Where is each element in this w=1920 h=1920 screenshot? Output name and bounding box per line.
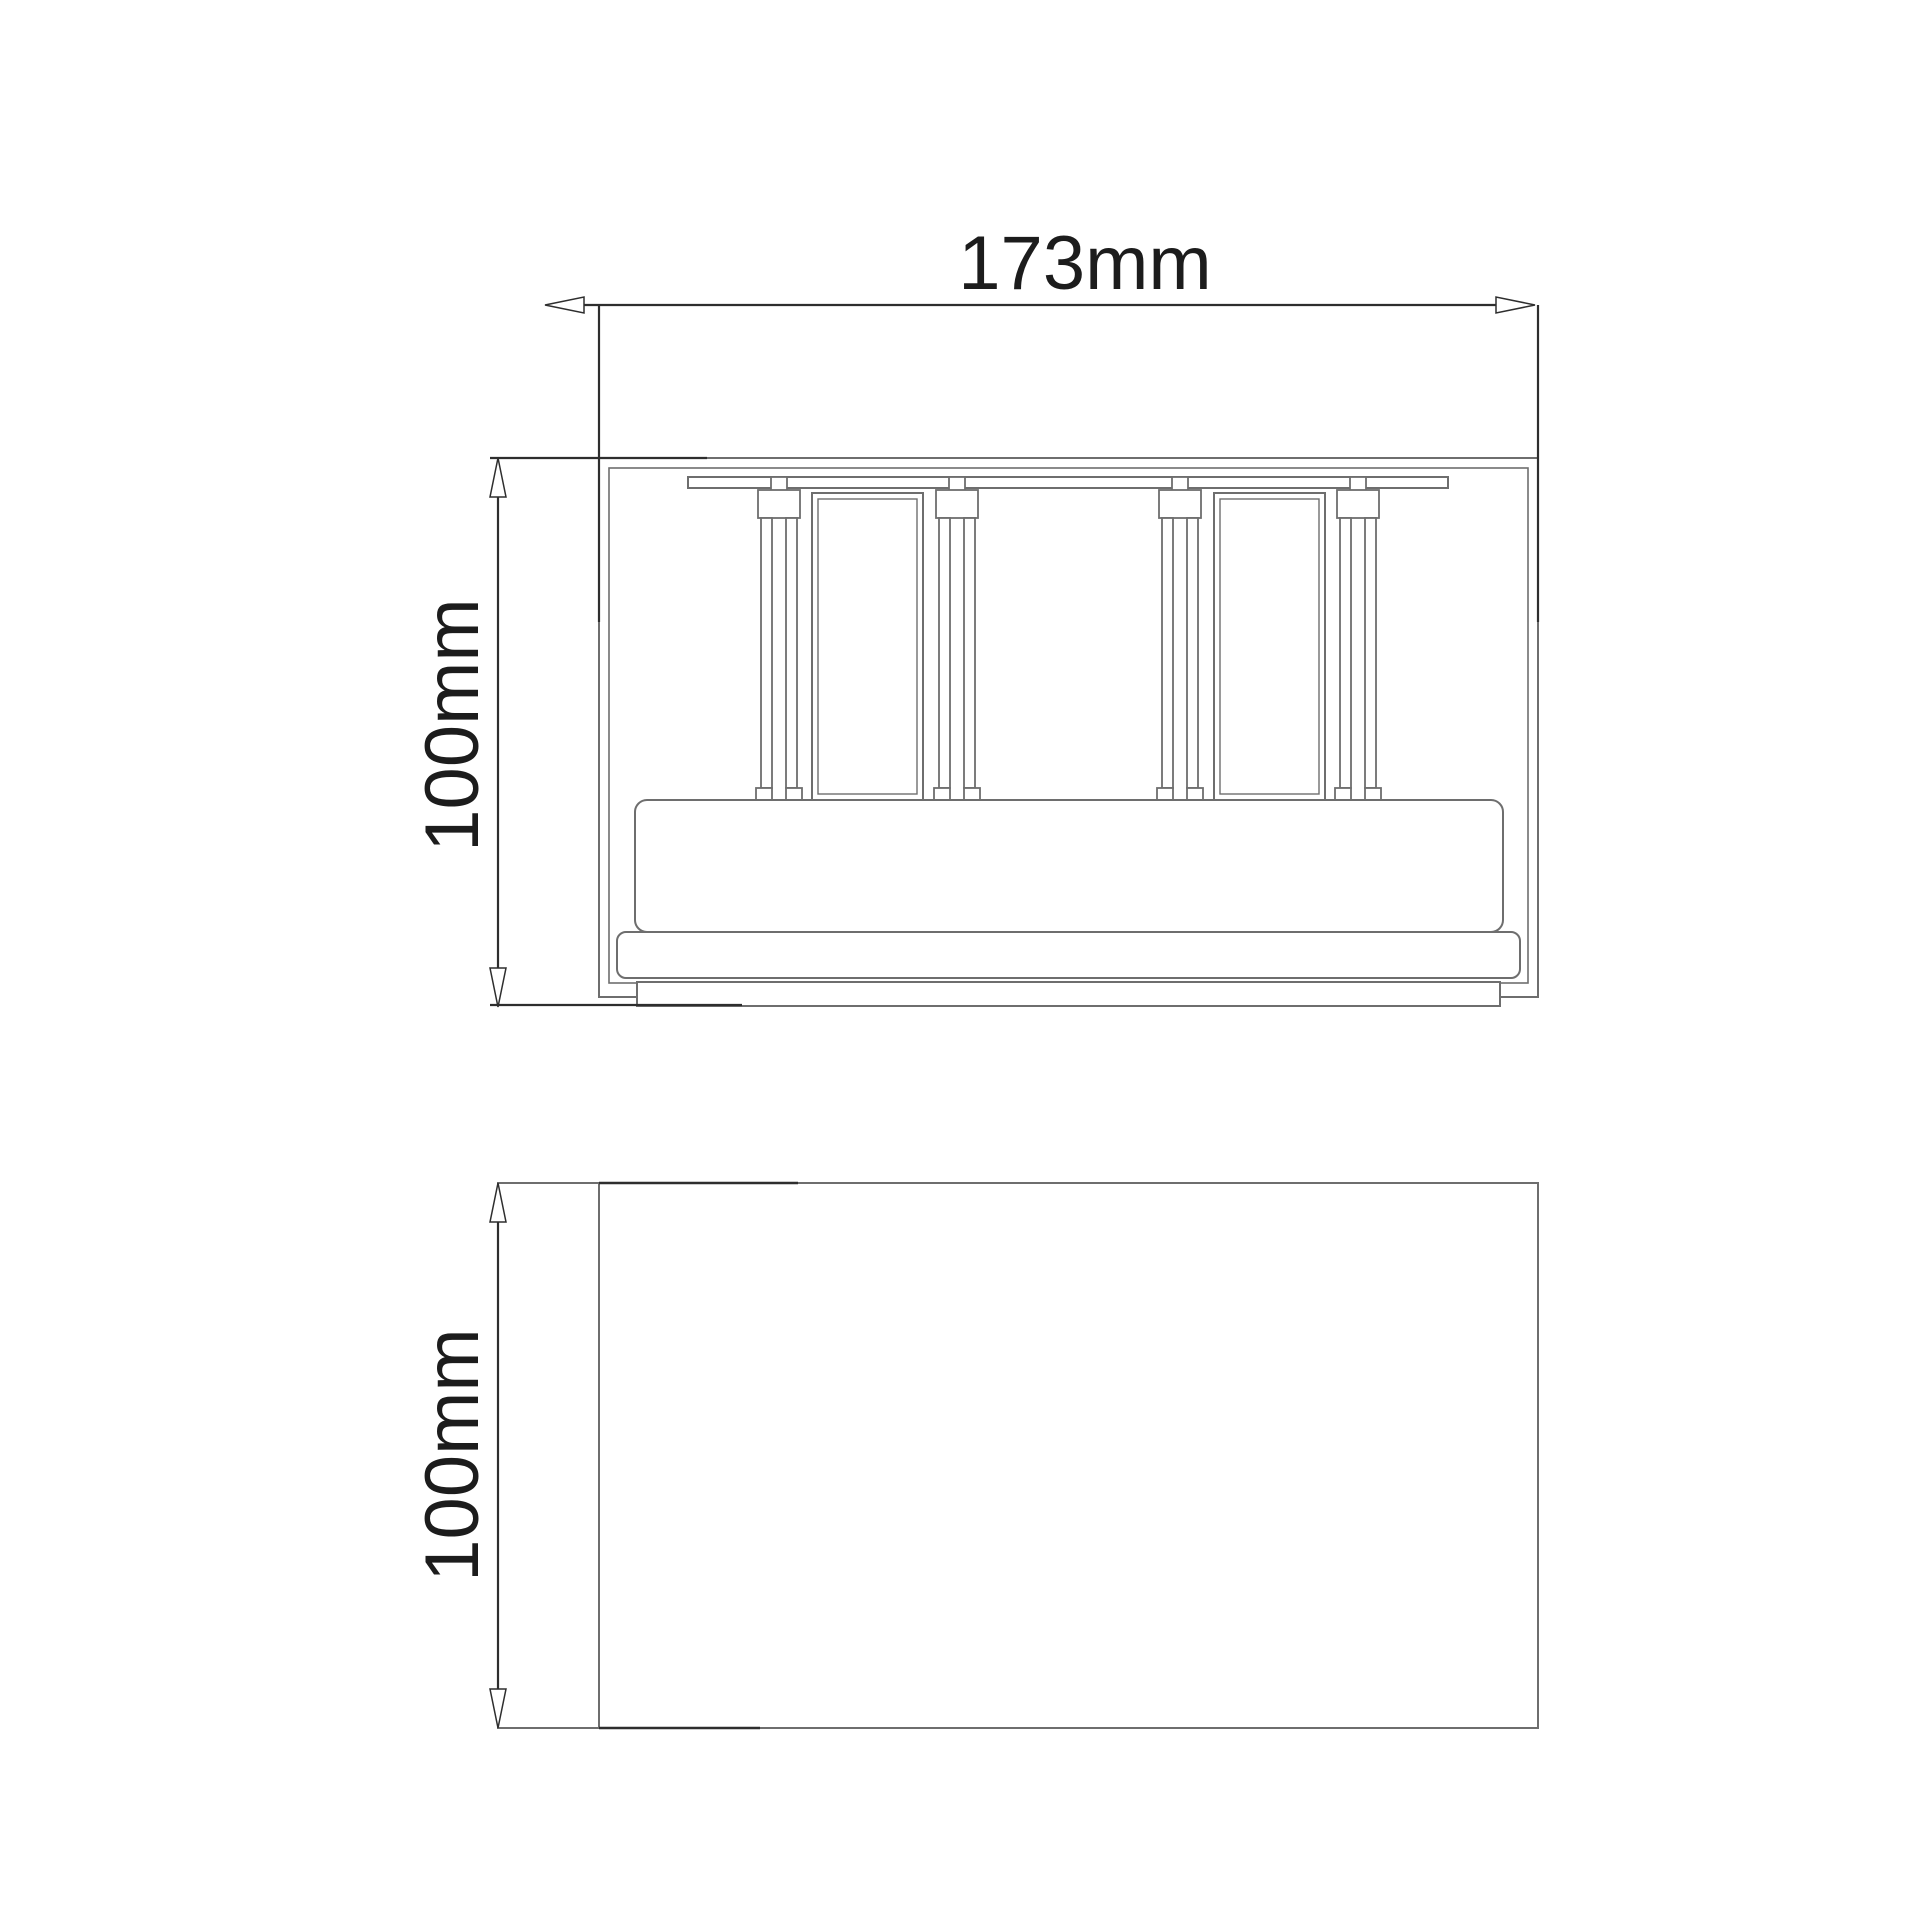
- pillar-foot: [1335, 788, 1351, 800]
- width-dimension-label: 173mm: [958, 221, 1211, 306]
- pillar-foot: [1157, 788, 1173, 800]
- base-bar: [617, 932, 1520, 978]
- pillar-rail: [1187, 518, 1198, 788]
- pillar-foot: [934, 788, 950, 800]
- pillar-rail: [1365, 518, 1376, 788]
- pillar-foot: [786, 788, 802, 800]
- pillar-rail: [939, 518, 950, 788]
- front-height-dimension-label: 100mm: [410, 598, 495, 851]
- lamp-body: [635, 800, 1503, 932]
- pillar-rail: [964, 518, 975, 788]
- pillar-cap: [1337, 490, 1379, 518]
- pillar-foot: [756, 788, 772, 800]
- pillar-cap: [758, 490, 800, 518]
- pillar-cap: [1159, 490, 1201, 518]
- pillar-foot: [1187, 788, 1203, 800]
- pillar-foot: [964, 788, 980, 800]
- pillar-rail: [761, 518, 772, 788]
- pillar-rail: [786, 518, 797, 788]
- pillar-foot: [1365, 788, 1381, 800]
- pillar-cap: [936, 490, 978, 518]
- side-height-dimension-label: 100mm: [410, 1328, 495, 1581]
- pillar-rail: [1162, 518, 1173, 788]
- bottom-cover: [637, 982, 1500, 1006]
- technical-drawing-canvas: 173mm 100mm 100mm: [0, 0, 1920, 1920]
- pillar-rail: [1340, 518, 1351, 788]
- mounting-plate: [688, 477, 1448, 488]
